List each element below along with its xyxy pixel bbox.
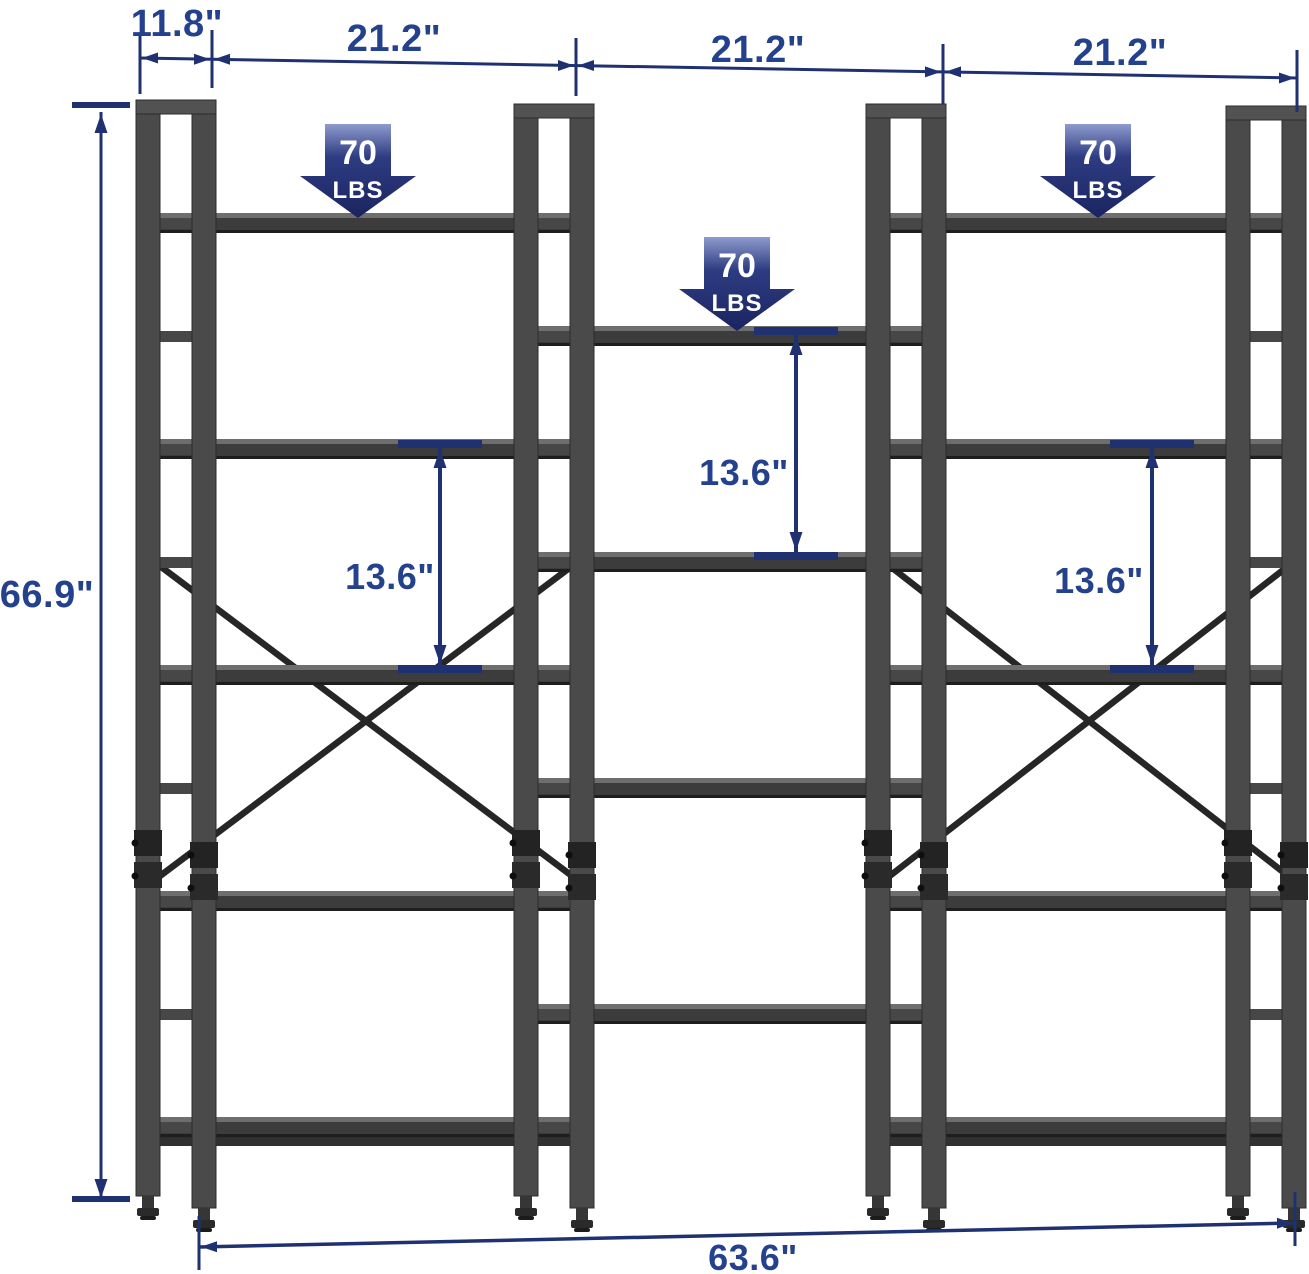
shelf-spacing-dimension-middle (754, 327, 838, 560)
load-capacity-value-right: 70 (1079, 136, 1117, 170)
load-capacity-value-left: 70 (339, 136, 377, 170)
shelf-spacing-label-left: 13.6" (345, 559, 435, 595)
load-capacity-value-middle: 70 (718, 249, 756, 283)
section-width-label-3: 21.2" (1073, 34, 1167, 72)
height-dimension (72, 102, 130, 1202)
load-capacity-unit-right: LBS (1073, 179, 1124, 203)
shelf-spacing-label-middle: 13.6" (699, 455, 789, 491)
height-dimension-label: 66.9" (0, 576, 94, 614)
shelf-spacing-label-right: 13.6" (1054, 563, 1144, 599)
section-width-label-1: 21.2" (347, 20, 441, 58)
bookshelf-dimension-diagram: 11.8" 21.2" 21.2" 21.2" 66.9" 63.6" 13.6… (0, 0, 1309, 1274)
shelf-spacing-dimension-right (1110, 440, 1194, 673)
depth-dimension-label: 11.8" (131, 5, 223, 43)
load-capacity-unit-middle: LBS (712, 292, 763, 316)
total-width-label: 63.6" (708, 1240, 798, 1274)
section-width-label-2: 21.2" (711, 31, 805, 69)
load-capacity-unit-left: LBS (333, 179, 384, 203)
